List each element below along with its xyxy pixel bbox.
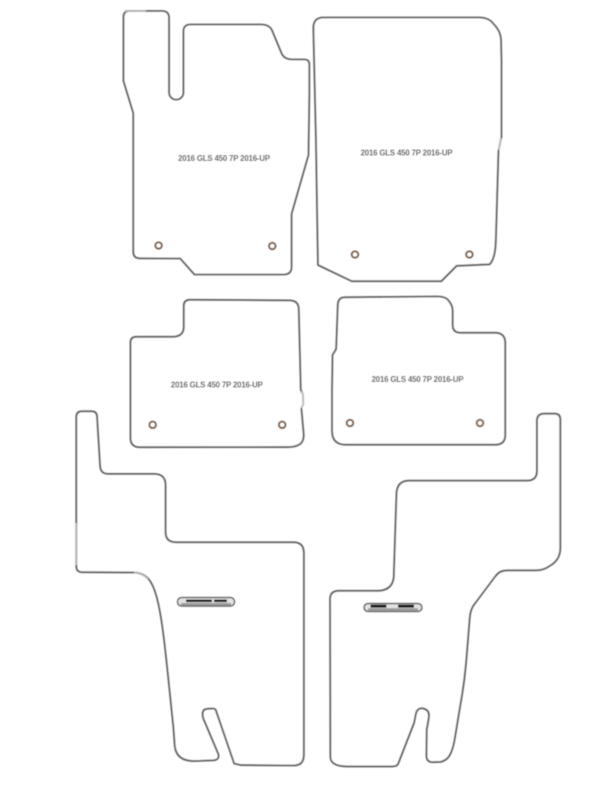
svg-text:2016 GLS 450 7P 2016-UP: 2016 GLS 450 7P 2016-UP [171,381,263,390]
svg-text:2016 GLS 450 7P 2016-UP: 2016 GLS 450 7P 2016-UP [372,375,464,384]
svg-text:2016 GLS 450 7P 2016-UP: 2016 GLS 450 7P 2016-UP [361,149,453,158]
svg-text:2016 GLS 450 7P 2016-UP: 2016 GLS 450 7P 2016-UP [178,154,270,163]
